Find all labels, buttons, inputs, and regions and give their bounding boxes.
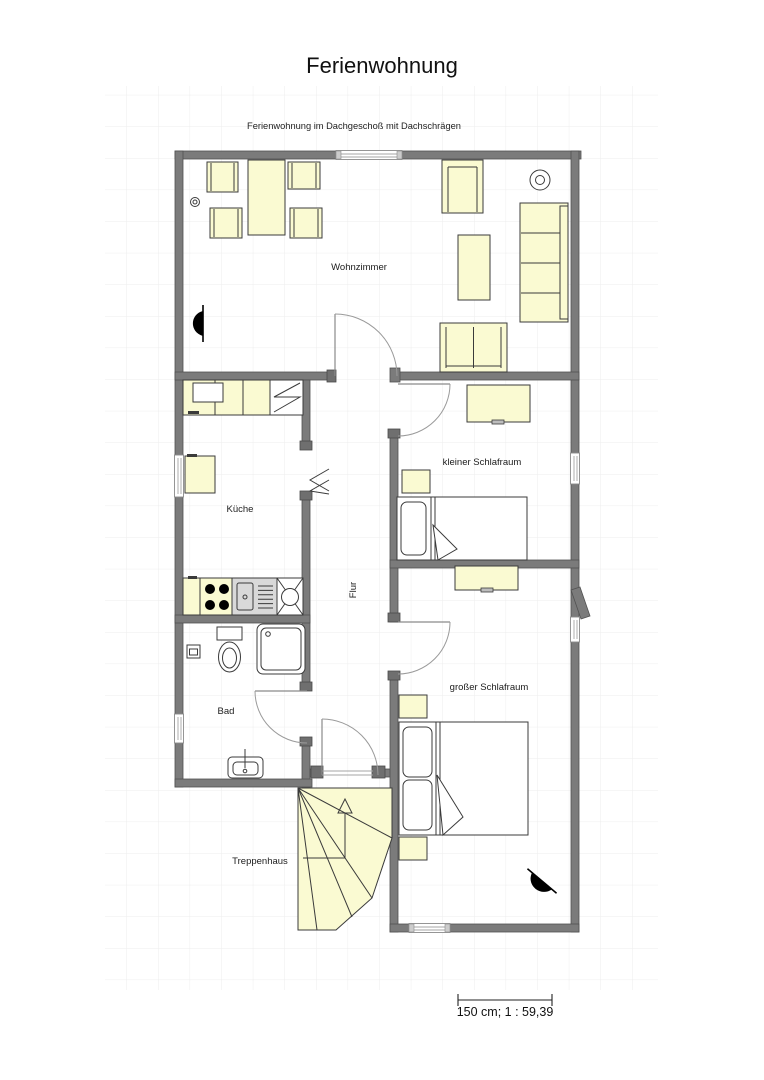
armchair bbox=[442, 160, 483, 213]
scale-bar: 150 cm; 1 : 59,39 bbox=[457, 994, 554, 1019]
corner-carousel-unit bbox=[277, 578, 303, 615]
nightstand bbox=[402, 470, 430, 493]
label-small-bedroom: kleiner Schlafraum bbox=[443, 457, 522, 468]
jamb-entry-right bbox=[372, 766, 385, 778]
cabinet-handle bbox=[188, 411, 199, 414]
side-table-round bbox=[530, 170, 550, 190]
pillow bbox=[403, 727, 432, 777]
window-kitchen-left bbox=[175, 455, 184, 497]
dresser bbox=[467, 385, 530, 422]
scale-label: 150 cm; 1 : 59,39 bbox=[457, 1005, 554, 1019]
kitchen-wall-cabinet bbox=[193, 383, 223, 402]
floor-plan-page: Ferienwohnung Ferienwohnung im Dachgesch… bbox=[0, 0, 764, 1080]
page-title: Ferienwohnung bbox=[306, 53, 458, 78]
window-largebedroom-bottom bbox=[409, 924, 450, 933]
window-living-top bbox=[336, 151, 402, 160]
window-smallbedroom-right bbox=[571, 453, 580, 484]
kitchen-base-unit bbox=[183, 578, 200, 615]
dresser bbox=[455, 566, 518, 590]
coffee-table bbox=[458, 235, 490, 300]
kitchen-side-counter bbox=[185, 456, 215, 493]
jamb-entry-left bbox=[311, 766, 323, 778]
jamb-smallbedroom-door bbox=[388, 429, 400, 438]
label-bath: Bad bbox=[218, 706, 235, 717]
kitchen-sink bbox=[232, 578, 277, 615]
loveseat bbox=[440, 323, 507, 372]
label-living-room: Wohnzimmer bbox=[331, 262, 387, 273]
dining-chair bbox=[290, 208, 322, 238]
toilet bbox=[217, 627, 242, 672]
window-largebedroom-right bbox=[571, 617, 580, 642]
dining-chair bbox=[210, 208, 242, 238]
wall-living-smallbedroom bbox=[393, 372, 579, 380]
label-kitchen: Küche bbox=[227, 504, 254, 515]
jamb-bath-door-top bbox=[300, 682, 312, 691]
cabinet-handle bbox=[187, 454, 197, 457]
dresser-handle bbox=[481, 588, 493, 592]
dining-table bbox=[248, 160, 285, 235]
kitchen-counter-unit bbox=[243, 380, 270, 415]
shower bbox=[257, 624, 305, 674]
dresser-handle bbox=[492, 420, 504, 424]
label-stairwell: Treppenhaus bbox=[232, 856, 288, 867]
single-bed bbox=[397, 497, 527, 560]
jamb-largebedroom-door-top bbox=[388, 613, 400, 622]
jamb-kitchen-opening-top bbox=[300, 441, 312, 450]
toilet-paper-holder bbox=[187, 645, 200, 658]
nightstand bbox=[399, 837, 427, 860]
nightstand bbox=[399, 695, 427, 718]
dining-chair bbox=[288, 162, 320, 189]
wall-living-kitchen bbox=[175, 372, 333, 380]
jamb-largebedroom-door-bottom bbox=[388, 671, 400, 680]
double-bed bbox=[399, 722, 528, 835]
wall-hall-right-post bbox=[390, 368, 400, 382]
appliance-zigzag-icon bbox=[270, 380, 303, 415]
wall-right bbox=[571, 151, 579, 932]
jamb-bath-door-bottom bbox=[300, 737, 312, 746]
wall-bath-bottom bbox=[175, 779, 312, 787]
pillow bbox=[401, 502, 426, 555]
page-subtitle: Ferienwohnung im Dachgeschoß mit Dachsch… bbox=[247, 121, 461, 131]
wall-kitchen-bath bbox=[175, 615, 310, 623]
label-large-bedroom: großer Schlafraum bbox=[450, 682, 529, 693]
sofa bbox=[520, 203, 568, 322]
cabinet-handle bbox=[188, 576, 197, 579]
floor-plan-canvas: Ferienwohnung Ferienwohnung im Dachgesch… bbox=[0, 0, 764, 1080]
label-hall: Flur bbox=[348, 582, 359, 598]
dining-chair bbox=[207, 162, 238, 192]
stove bbox=[200, 578, 232, 615]
pillow bbox=[403, 780, 432, 830]
window-bath-left bbox=[175, 714, 184, 743]
jamb-kitchen-opening-bottom bbox=[300, 491, 312, 500]
